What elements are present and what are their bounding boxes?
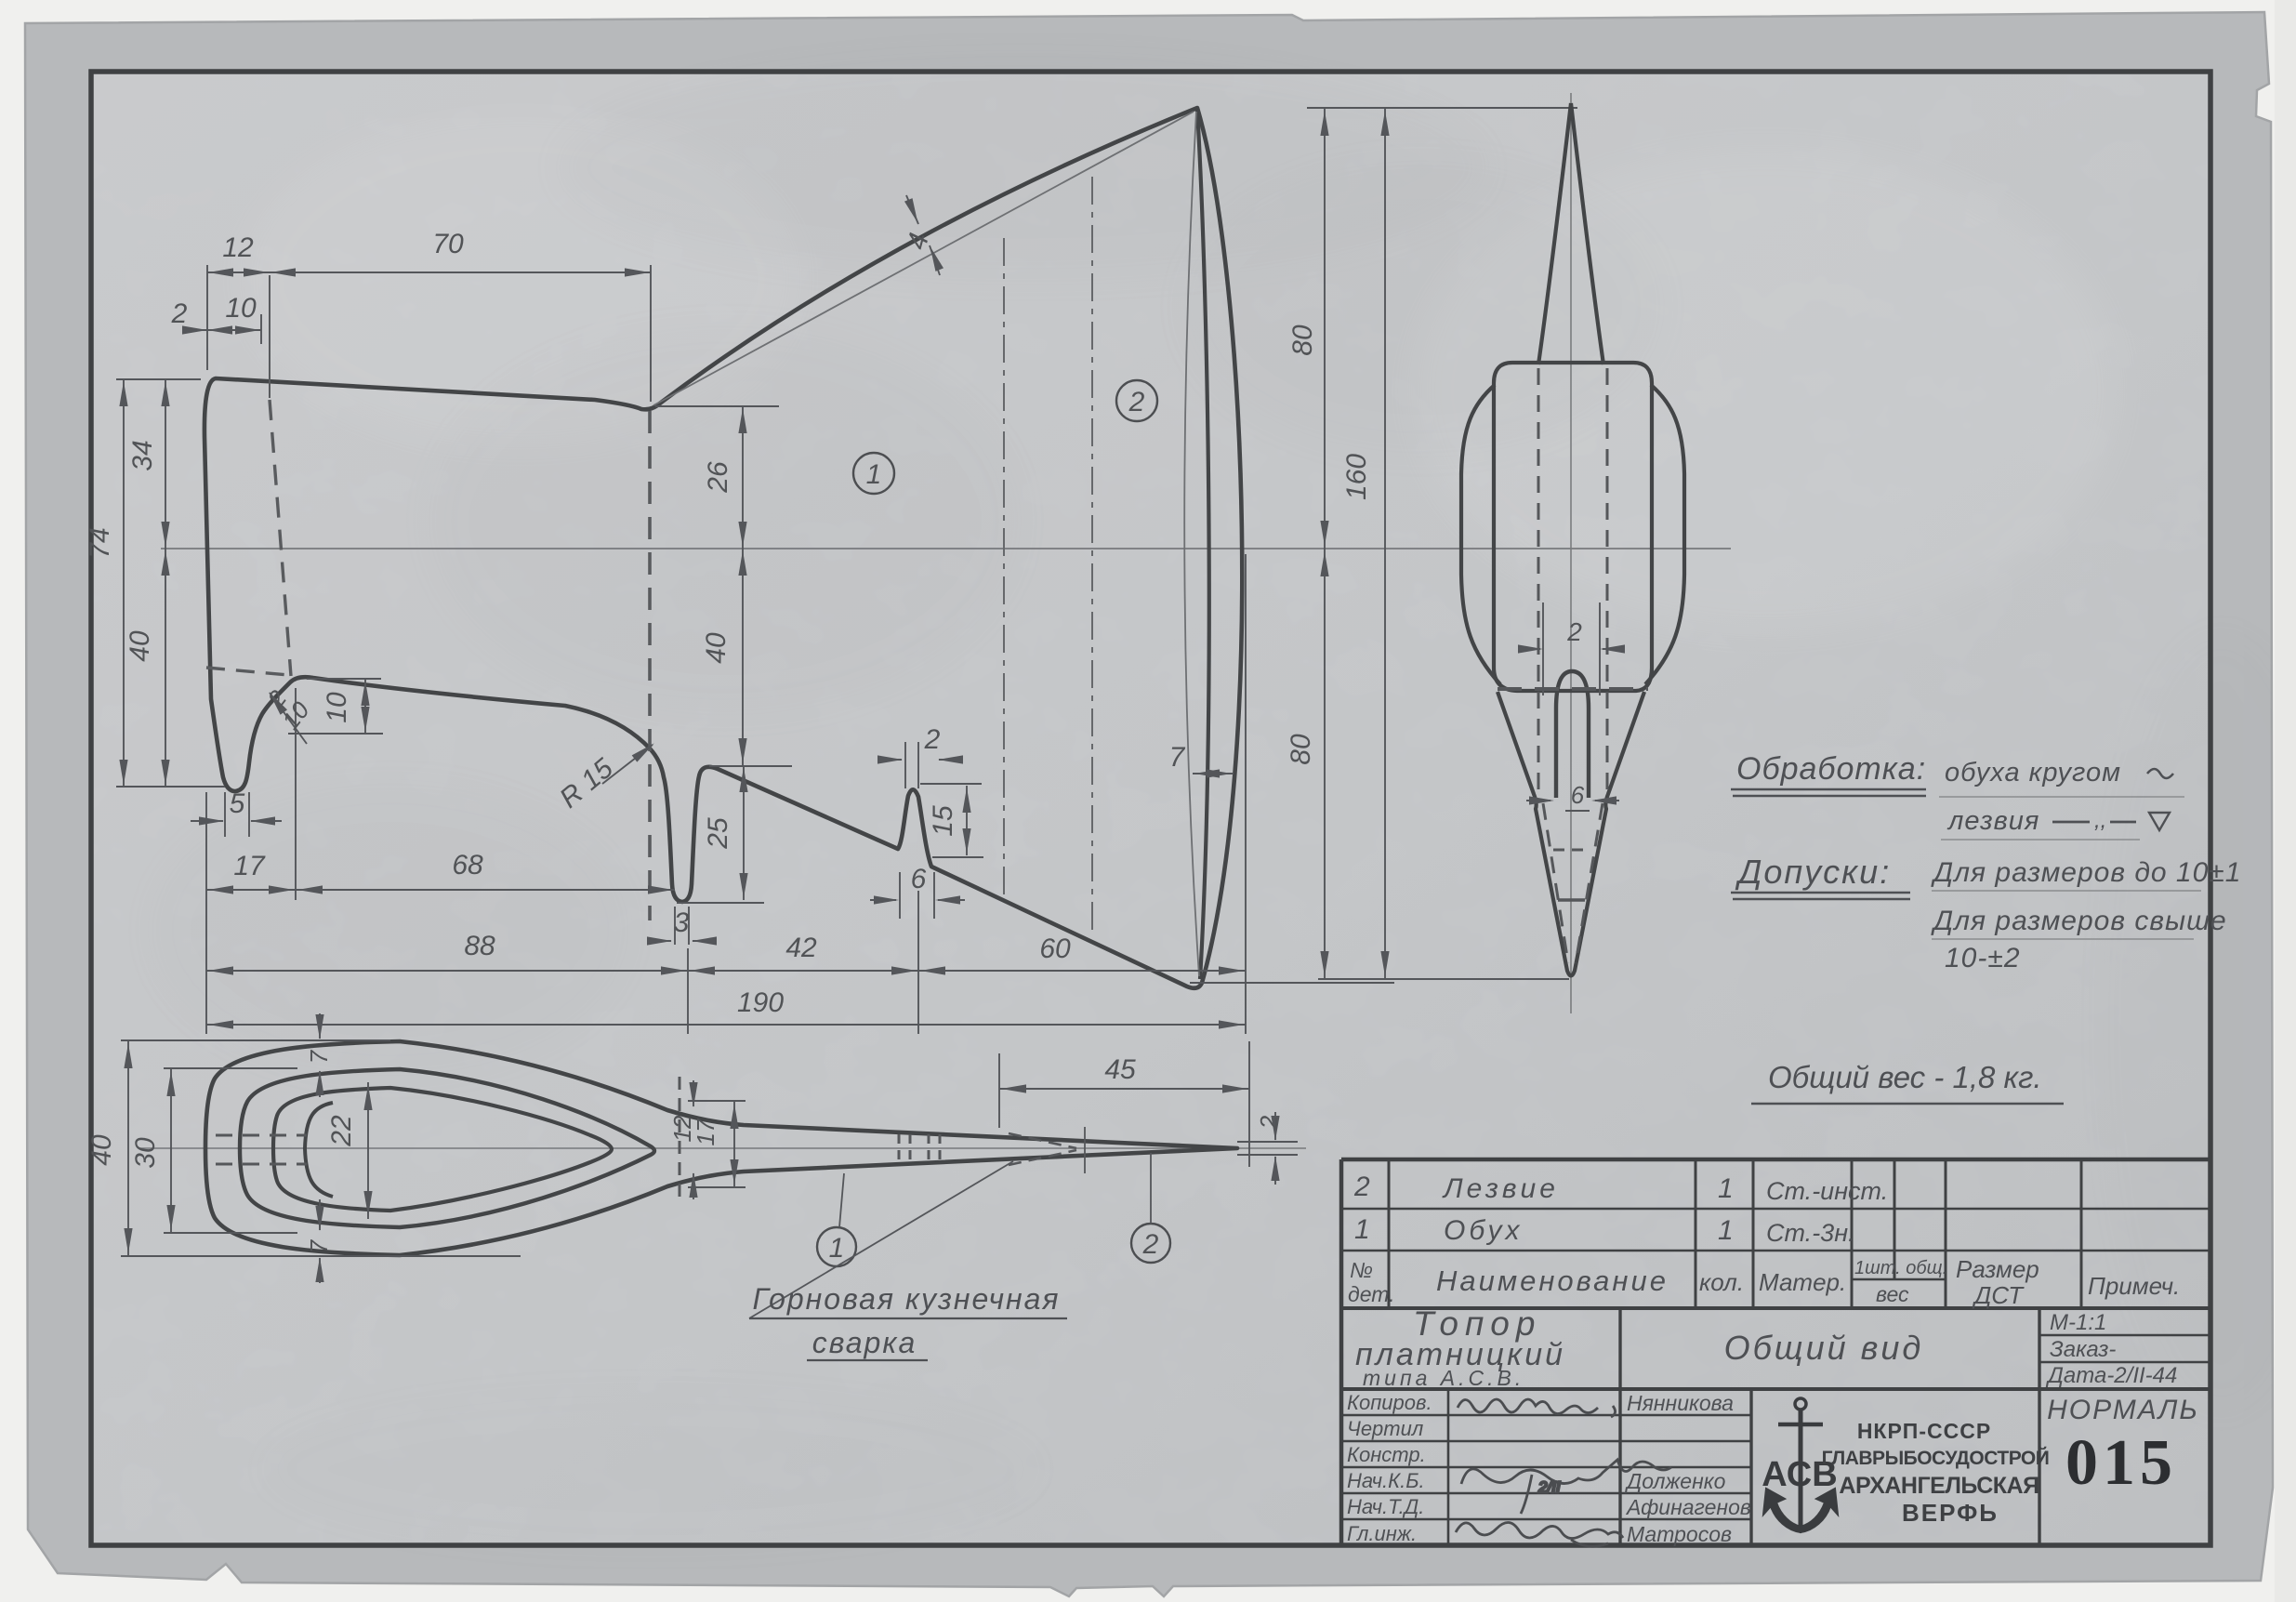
svg-text:40: 40 bbox=[701, 632, 732, 664]
svg-text:№: № bbox=[1350, 1258, 1373, 1282]
svg-text:68: 68 bbox=[452, 850, 483, 880]
svg-text:обуха кругом: обуха кругом bbox=[1945, 758, 2121, 788]
svg-text:Нач.Т.Д.: Нач.Т.Д. bbox=[1347, 1495, 1424, 1518]
svg-text:лезвия: лезвия bbox=[1946, 806, 2039, 836]
svg-text:2: 2 bbox=[1128, 387, 1145, 417]
svg-text:2: 2 bbox=[1255, 1115, 1283, 1130]
svg-text:Копиров.: Копиров. bbox=[1347, 1391, 1432, 1414]
svg-text:1: 1 bbox=[1718, 1173, 1734, 1204]
svg-text:Нач.К.Б.: Нач.К.Б. bbox=[1347, 1469, 1425, 1492]
svg-text:Матросов: Матросов bbox=[1627, 1522, 1732, 1546]
svg-text:70: 70 bbox=[432, 229, 464, 259]
svg-text:Обработка:: Обработка: bbox=[1736, 751, 1926, 787]
svg-text:2: 2 bbox=[1566, 617, 1582, 646]
svg-text:30: 30 bbox=[130, 1137, 161, 1169]
svg-text:Афинагенов: Афинагенов bbox=[1625, 1495, 1751, 1519]
svg-text:НОРМАЛЬ: НОРМАЛЬ bbox=[2047, 1395, 2199, 1425]
svg-text:1: 1 bbox=[829, 1233, 845, 1264]
svg-text:дет.: дет. bbox=[1348, 1282, 1395, 1306]
svg-text:12: 12 bbox=[222, 232, 254, 263]
svg-text:Заказ-: Заказ- bbox=[2050, 1337, 2116, 1362]
svg-text:3: 3 bbox=[674, 907, 690, 938]
svg-text:Чертил: Чертил bbox=[1347, 1417, 1423, 1440]
svg-text:2: 2 bbox=[924, 724, 941, 755]
svg-text:Лезвие: Лезвие bbox=[1442, 1173, 1559, 1204]
svg-text:Матер.: Матер. bbox=[1759, 1268, 1846, 1296]
svg-text:25: 25 bbox=[703, 817, 733, 850]
svg-text:Допуски:: Допуски: bbox=[1735, 853, 1891, 891]
svg-text:Размер: Размер bbox=[1956, 1255, 2039, 1283]
svg-text:160: 160 bbox=[1341, 454, 1372, 500]
svg-text:Ст.-3н.: Ст.-3н. bbox=[1766, 1219, 1855, 1247]
svg-text:1: 1 bbox=[1718, 1215, 1734, 1246]
svg-text:Констр.: Констр. bbox=[1347, 1443, 1426, 1466]
svg-text:40: 40 bbox=[125, 630, 155, 662]
svg-text:15: 15 bbox=[928, 805, 958, 837]
svg-text:190: 190 bbox=[737, 987, 784, 1018]
svg-text:М-1:1: М-1:1 bbox=[2050, 1310, 2106, 1335]
svg-text:17: 17 bbox=[692, 1118, 719, 1145]
svg-text:2: 2 bbox=[1142, 1229, 1159, 1260]
svg-text:типа А.С.В.: типа А.С.В. bbox=[1363, 1366, 1524, 1390]
svg-text:Общий вид: Общий вид bbox=[1724, 1329, 1924, 1367]
svg-text:6: 6 bbox=[911, 864, 927, 894]
svg-text:1шт. общ.: 1шт. общ. bbox=[1854, 1258, 1947, 1278]
svg-text:Общий вес - 1,8 кг.: Общий вес - 1,8 кг. bbox=[1768, 1060, 2042, 1094]
svg-text:1: 1 bbox=[1354, 1214, 1370, 1245]
svg-text:80: 80 bbox=[1287, 324, 1318, 356]
svg-text:34: 34 bbox=[127, 440, 158, 470]
svg-text:2: 2 bbox=[171, 298, 188, 329]
svg-text:22: 22 bbox=[326, 1115, 357, 1147]
svg-text:10-±2: 10-±2 bbox=[1945, 943, 2021, 973]
svg-text:Горновая кузнечная: Горновая кузнечная bbox=[752, 1282, 1060, 1316]
svg-text:Дата-2/II-44: Дата-2/II-44 bbox=[2045, 1363, 2177, 1388]
svg-text:7: 7 bbox=[305, 1049, 333, 1064]
svg-text:Ст.-инст.: Ст.-инст. bbox=[1766, 1177, 1888, 1205]
svg-text:7: 7 bbox=[305, 1238, 333, 1253]
svg-text:Для размеров свыше: Для размеров свыше bbox=[1931, 906, 2227, 936]
svg-text:42: 42 bbox=[785, 933, 817, 963]
svg-text:17: 17 bbox=[233, 851, 266, 881]
svg-text:Наименование: Наименование bbox=[1436, 1264, 1669, 1297]
svg-text:10: 10 bbox=[225, 293, 257, 324]
svg-text:Примеч.: Примеч. bbox=[2088, 1272, 2180, 1300]
svg-text:кол.: кол. bbox=[1699, 1268, 1744, 1296]
svg-text:80: 80 bbox=[1286, 734, 1316, 765]
svg-text:ГЛАВРЫБОСУДОСТРОЙ: ГЛАВРЫБОСУДОСТРОЙ bbox=[1822, 1447, 2050, 1469]
svg-text:40: 40 bbox=[86, 1134, 117, 1166]
svg-text:Долженко: Долженко bbox=[1624, 1469, 1726, 1493]
svg-text:6: 6 bbox=[1571, 781, 1585, 809]
svg-text:1: 1 bbox=[866, 459, 882, 490]
svg-text:88: 88 bbox=[464, 931, 495, 961]
svg-text:60: 60 bbox=[1039, 933, 1071, 964]
svg-text:Обух: Обух bbox=[1444, 1215, 1524, 1246]
svg-text:45: 45 bbox=[1104, 1054, 1136, 1085]
svg-text:74: 74 bbox=[85, 527, 115, 558]
svg-text:Для размеров до 10±1: Для размеров до 10±1 bbox=[1931, 857, 2241, 888]
svg-text:Нянникова: Нянникова bbox=[1627, 1391, 1734, 1415]
svg-text:вес: вес bbox=[1876, 1282, 1909, 1306]
svg-text:7: 7 bbox=[1169, 742, 1186, 773]
svg-text:5: 5 bbox=[230, 788, 245, 819]
svg-text:26: 26 bbox=[703, 461, 733, 494]
svg-text:НКРП-СССР: НКРП-СССР bbox=[1857, 1419, 1991, 1443]
svg-text:015: 015 bbox=[2065, 1427, 2177, 1499]
svg-text:10: 10 bbox=[322, 692, 352, 723]
svg-text:ВЕРФЬ: ВЕРФЬ bbox=[1902, 1499, 1999, 1527]
svg-text:АРХАНГЕЛЬСКАЯ: АРХАНГЕЛЬСКАЯ bbox=[1839, 1473, 2039, 1499]
svg-text:2/II: 2/II bbox=[1537, 1478, 1561, 1496]
svg-text:ДСТ: ДСТ bbox=[1972, 1281, 2025, 1309]
svg-text:Гл.инж.: Гл.инж. bbox=[1347, 1522, 1417, 1545]
svg-text:сварка: сварка bbox=[812, 1326, 917, 1359]
svg-text:2: 2 bbox=[1353, 1172, 1370, 1202]
svg-text:,,: ,, bbox=[2094, 808, 2106, 833]
